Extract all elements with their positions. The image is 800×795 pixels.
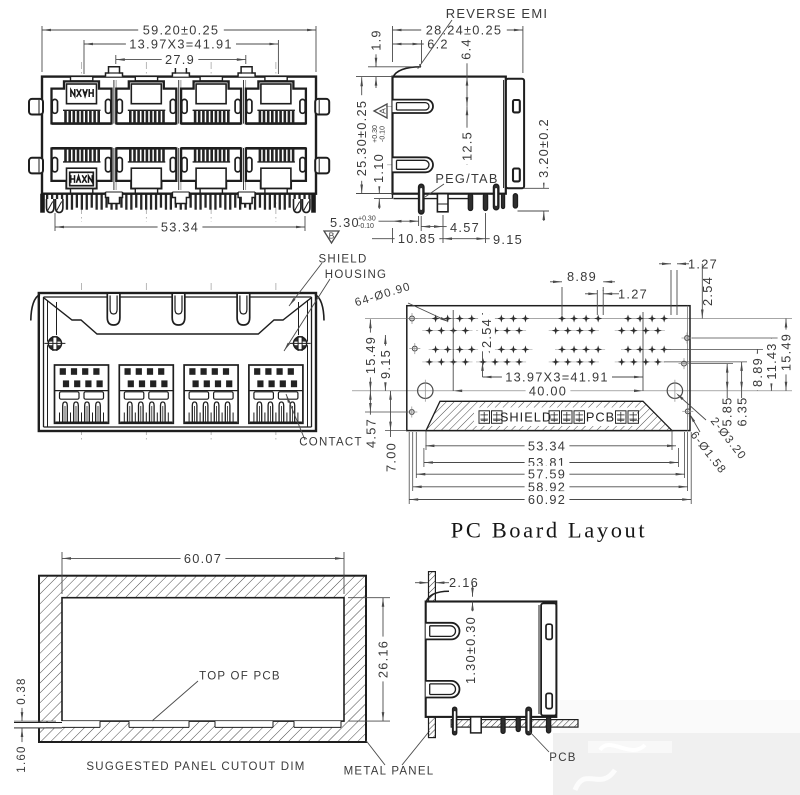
svg-text:13.97X3=41.91: 13.97X3=41.91 [129,37,232,52]
svg-text:4.57: 4.57 [450,220,480,235]
svg-text:53.34: 53.34 [161,220,199,235]
svg-text:4.57: 4.57 [364,418,379,448]
svg-text:9.15: 9.15 [378,349,393,379]
svg-text:2.54: 2.54 [479,318,494,348]
svg-text:59.20±0.25: 59.20±0.25 [143,23,219,38]
svg-text:PCB: PCB [586,410,615,425]
svg-text:PC Board Layout: PC Board Layout [451,518,648,543]
svg-text:METAL PANEL: METAL PANEL [344,766,435,778]
svg-text:8.89: 8.89 [567,269,597,284]
svg-text:10.85: 10.85 [398,231,436,246]
svg-text:-0.10: -0.10 [379,126,386,142]
svg-text:53.34: 53.34 [528,438,566,453]
svg-text:CONTACT: CONTACT [299,437,362,449]
svg-text:A: A [378,108,388,114]
svg-text:SHIELD: SHIELD [318,254,367,266]
svg-text:6.35: 6.35 [735,397,750,427]
svg-text:5.30: 5.30 [330,215,360,230]
svg-text:HOUSING: HOUSING [325,269,387,281]
svg-text:6.2: 6.2 [427,37,449,52]
svg-text:SUGGESTED PANEL CUTOUT DIM: SUGGESTED PANEL CUTOUT DIM [86,761,305,773]
svg-text:9.15: 9.15 [493,232,523,247]
svg-text:1.60: 1.60 [16,745,28,772]
svg-text:12.5: 12.5 [460,131,475,161]
svg-text:7.00: 7.00 [384,442,399,472]
svg-text:11.43: 11.43 [764,342,779,379]
svg-text:3.20±0.2: 3.20±0.2 [536,118,551,178]
svg-text:-0.10: -0.10 [358,223,374,230]
svg-text:40.00: 40.00 [529,383,567,398]
svg-text:B: B [329,231,335,241]
svg-text:1.27: 1.27 [688,256,718,271]
svg-text:+0.30: +0.30 [372,125,379,143]
svg-text:PCB: PCB [549,752,576,764]
svg-text:25.30±0.25: 25.30±0.25 [354,100,369,176]
svg-text:2.54: 2.54 [700,276,715,306]
svg-text:1.9: 1.9 [369,29,384,51]
svg-text:8.89: 8.89 [750,357,765,387]
svg-text:0.38: 0.38 [16,677,28,704]
svg-text:REVERSE EMI: REVERSE EMI [446,6,549,21]
svg-text:TOP OF PCB: TOP OF PCB [199,671,281,683]
svg-text:2.16: 2.16 [449,575,479,590]
svg-text:1.30±0.30: 1.30±0.30 [463,616,478,684]
svg-text:15.49: 15.49 [363,336,378,374]
svg-text:27.9: 27.9 [165,52,195,67]
svg-text:+0.30: +0.30 [358,216,376,223]
svg-text:PEG/TAB: PEG/TAB [435,171,498,186]
svg-text:13.97X3=41.91: 13.97X3=41.91 [505,370,608,385]
svg-text:60.07: 60.07 [184,551,222,566]
svg-text:15.49: 15.49 [779,333,794,371]
svg-text:6.4: 6.4 [459,38,474,60]
svg-text:SHIELD: SHIELD [500,410,552,425]
svg-text:1.10: 1.10 [371,153,386,183]
svg-text:60.92: 60.92 [528,492,566,507]
svg-text:26.16: 26.16 [376,640,391,678]
svg-text:1.27: 1.27 [618,286,648,301]
